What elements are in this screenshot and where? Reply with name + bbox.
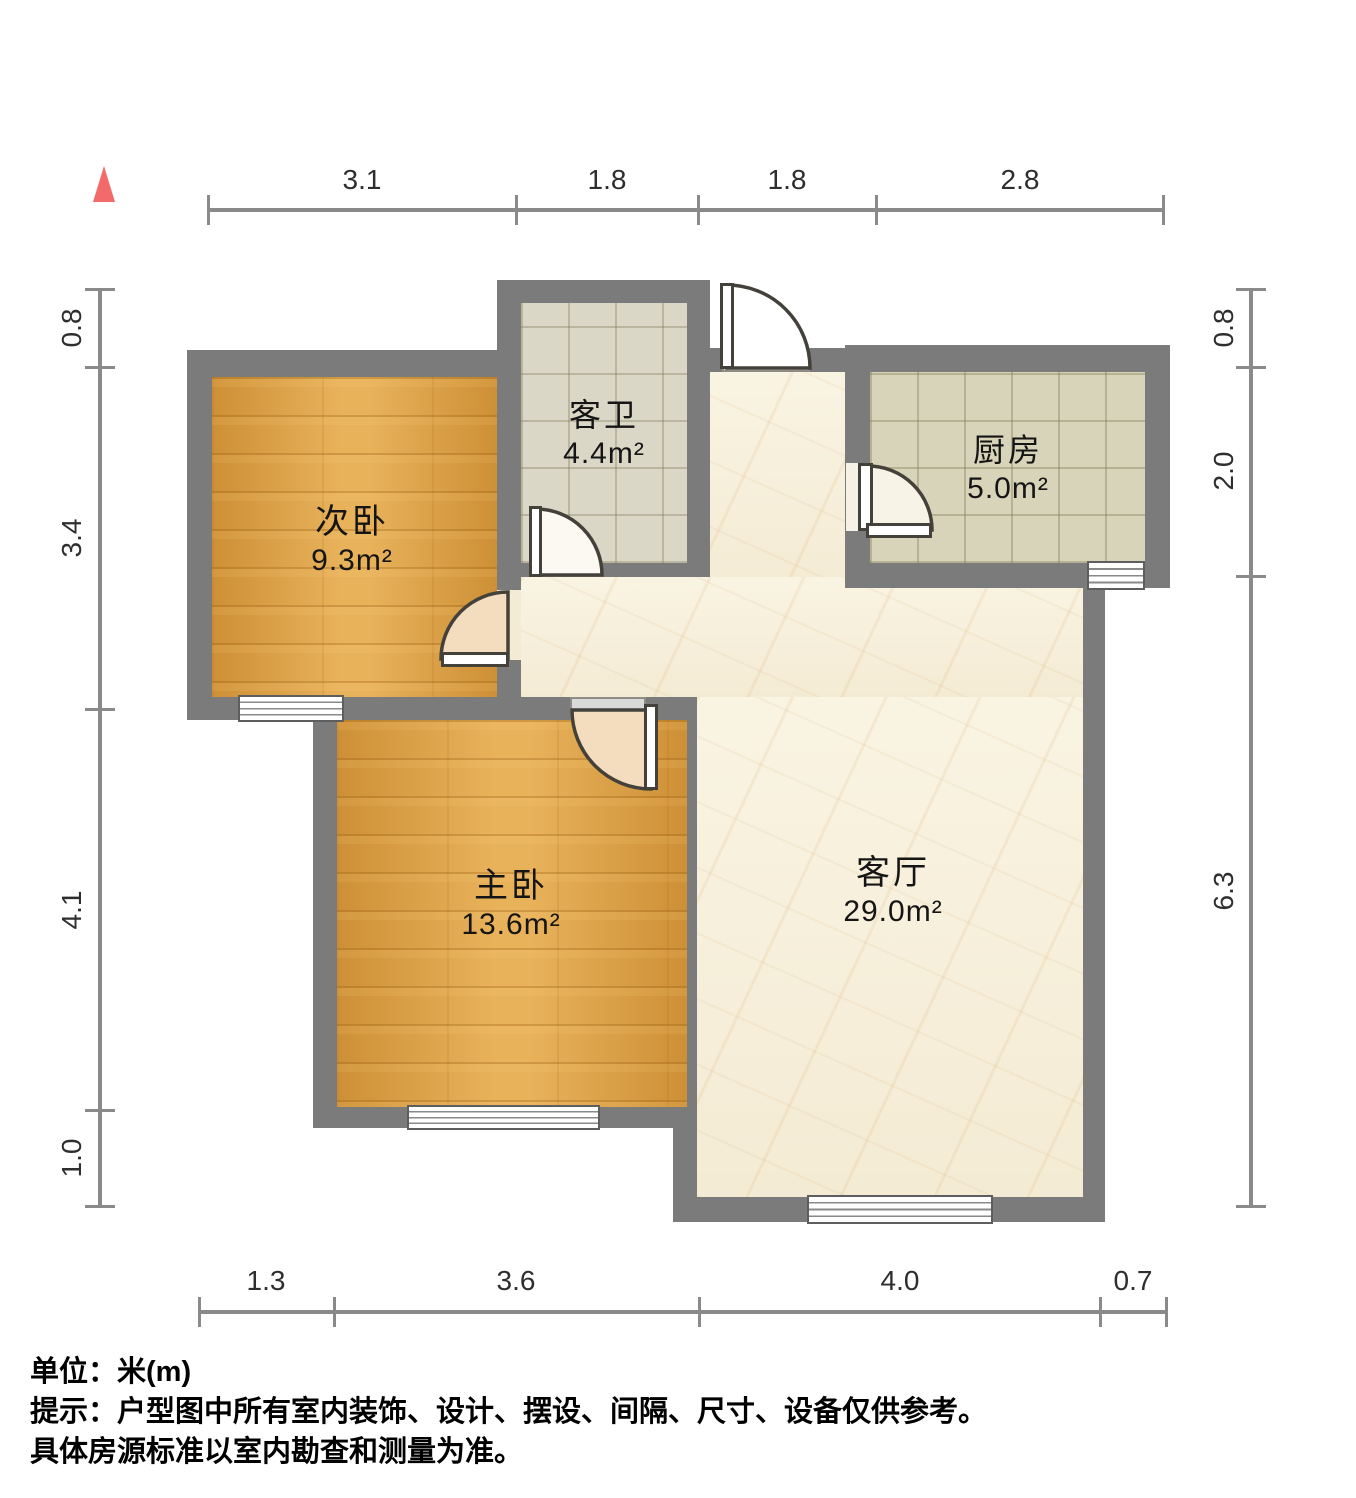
tip-note-1: 提示：户型图中所有室内装饰、设计、摆设、间隔、尺寸、设备仅供参考。 xyxy=(30,1392,987,1432)
wall-kitchen-top xyxy=(845,345,1170,372)
room-name: 主卧 xyxy=(461,866,560,906)
floor-hallway xyxy=(521,577,1083,697)
dim-value: 0.8 xyxy=(56,309,88,348)
room-area: 4.4m² xyxy=(563,435,645,473)
door-leaf-kitchen xyxy=(858,463,873,531)
door-entry-closed-shadow xyxy=(722,348,810,372)
floor-foyer xyxy=(697,372,845,588)
floor-plan-page: 次卧 9.3m² 客卫 4.4m² 厨房 5.0m² 主卧 13.6m² 客厅 … xyxy=(0,0,1356,1498)
dim-value: 6.3 xyxy=(1208,872,1240,911)
door-leaf-kitchen-swing xyxy=(866,523,932,538)
door-master-closed-shadow xyxy=(570,697,646,720)
label-living-room: 客厅 29.0m² xyxy=(843,853,942,931)
footer-notes: 单位：米(m) 提示：户型图中所有室内装饰、设计、摆设、间隔、尺寸、设备仅供参考… xyxy=(30,1352,987,1472)
dim-value: 0.8 xyxy=(1208,309,1240,348)
room-name: 厨房 xyxy=(967,430,1049,470)
window-living-room xyxy=(807,1195,993,1224)
dim-value: 3.1 xyxy=(343,164,382,196)
door-leaf-secondary-bedroom xyxy=(441,652,509,667)
room-name: 次卧 xyxy=(311,502,393,542)
dimension-line xyxy=(98,289,102,1207)
wall-bathroom-top xyxy=(497,280,710,303)
room-area: 5.0m² xyxy=(967,470,1049,508)
door-leaf-master-bedroom xyxy=(644,704,658,790)
label-secondary-bedroom: 次卧 9.3m² xyxy=(311,502,393,580)
dimension-line xyxy=(199,1310,1167,1314)
door-secondary-opening xyxy=(497,590,521,660)
wall-kitchen-right xyxy=(1145,345,1170,588)
dim-value: 4.1 xyxy=(56,891,88,930)
window-master-bedroom xyxy=(407,1105,600,1130)
room-name: 客厅 xyxy=(843,853,942,893)
wall-bathroom-right xyxy=(687,298,710,577)
dim-value: 3.4 xyxy=(56,519,88,558)
room-area: 9.3m² xyxy=(311,542,393,580)
dim-value: 1.3 xyxy=(247,1265,286,1297)
dim-value: 2.8 xyxy=(1001,164,1040,196)
dim-value: 4.0 xyxy=(881,1265,920,1297)
window-kitchen xyxy=(1087,561,1145,590)
dim-value: 1.8 xyxy=(588,164,627,196)
door-leaf-entry xyxy=(720,283,734,369)
tip-note-2: 具体房源标准以室内勘查和测量为准。 xyxy=(30,1432,987,1472)
dim-value: 1.8 xyxy=(768,164,807,196)
wall-top-secondary-bedroom xyxy=(187,350,521,377)
room-area: 29.0m² xyxy=(843,893,942,931)
north-marker-icon xyxy=(93,166,115,202)
dim-value: 0.7 xyxy=(1114,1265,1153,1297)
door-leaf-bathroom xyxy=(529,506,542,577)
floor-living-room xyxy=(697,697,1083,1197)
dim-value: 1.0 xyxy=(56,1139,88,1178)
unit-note: 单位：米(m) xyxy=(30,1352,987,1392)
door-bathroom-closed-shadow xyxy=(536,563,602,577)
label-master-bedroom: 主卧 13.6m² xyxy=(461,866,560,944)
room-area: 13.6m² xyxy=(461,906,560,944)
wall-master-bedroom-left xyxy=(313,697,337,1128)
wall-master-living-divider xyxy=(687,697,697,1107)
label-kitchen: 厨房 5.0m² xyxy=(967,430,1049,508)
label-guest-bathroom: 客卫 4.4m² xyxy=(563,395,645,473)
room-name: 客卫 xyxy=(563,395,645,435)
wall-living-room-right xyxy=(1083,572,1105,1222)
dimension-line xyxy=(1249,289,1253,1207)
window-secondary-bedroom xyxy=(238,695,344,722)
dim-value: 2.0 xyxy=(1208,452,1240,491)
dim-value: 3.6 xyxy=(497,1265,536,1297)
dimension-line xyxy=(208,208,1164,212)
wall-left-exterior xyxy=(187,350,212,720)
